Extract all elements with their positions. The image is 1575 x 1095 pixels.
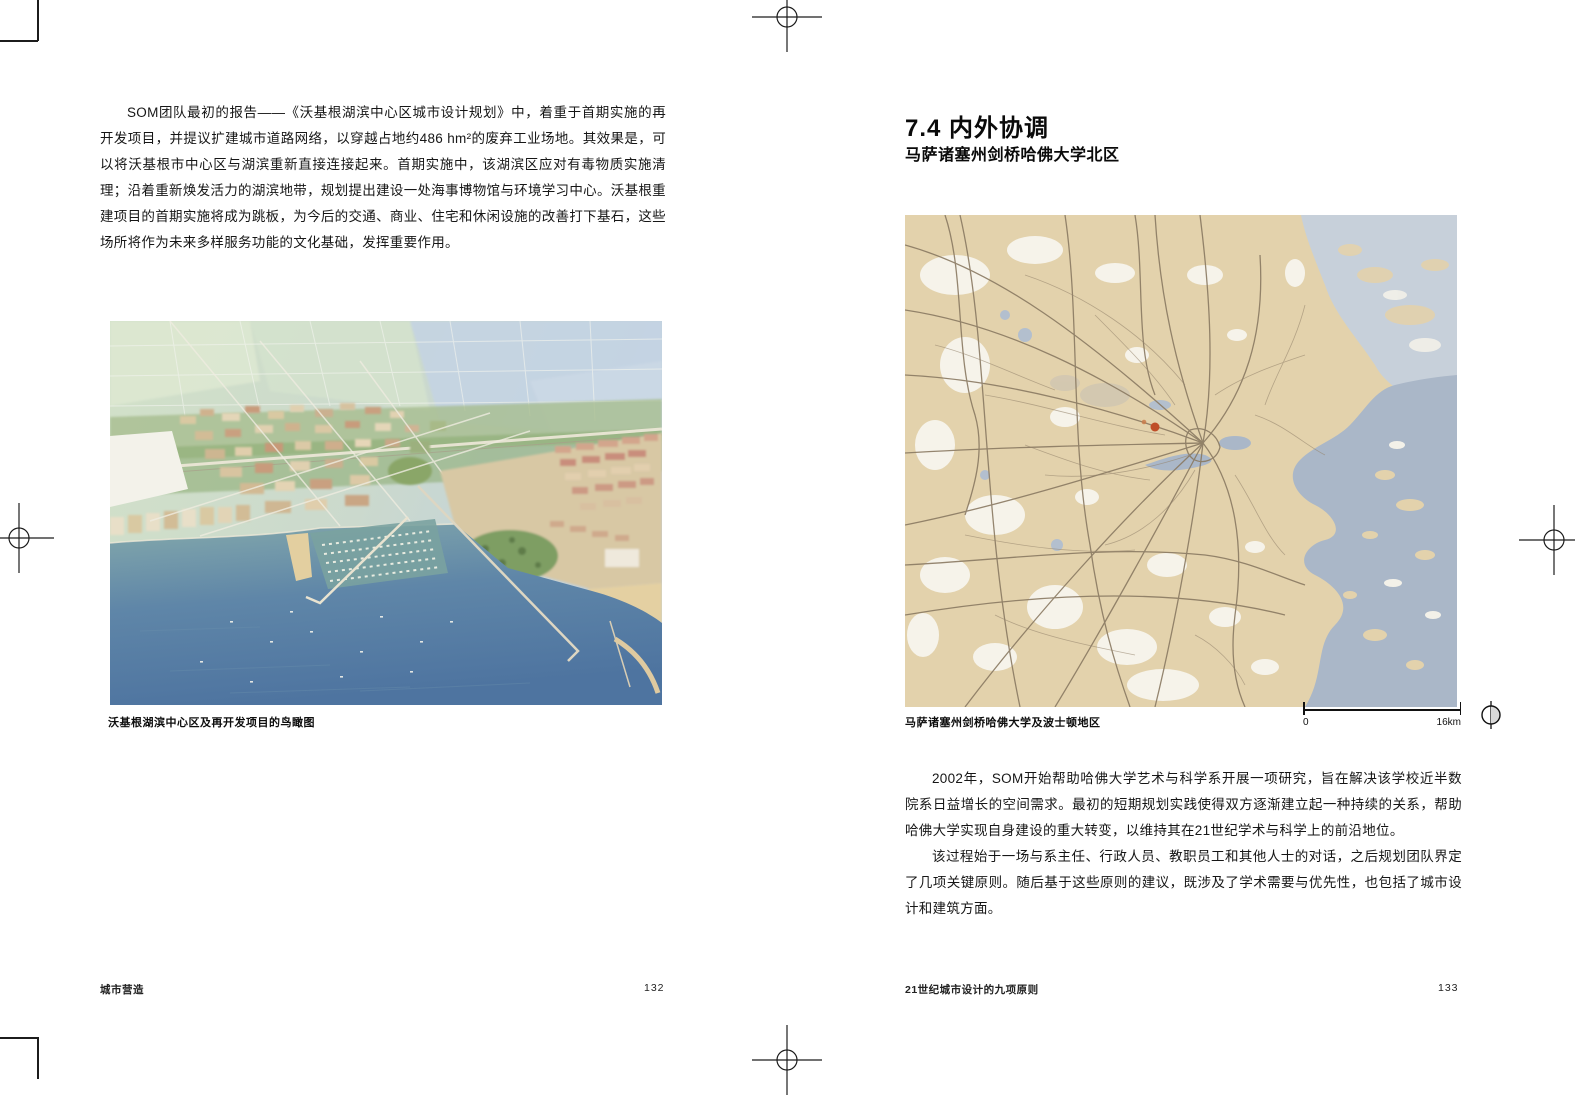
scale-bar-start-label: 0: [1303, 717, 1309, 728]
right-paragraph-1: 2002年，SOM开始帮助哈佛大学艺术与科学系开展一项研究，旨在解决该学校近半数…: [905, 766, 1462, 844]
book-spread: SOM团队最初的报告——《沃基根湖滨中心区城市设计规划》中，着重于首期实施的再开…: [0, 0, 1575, 1079]
section-subheading: 马萨诸塞州剑桥哈佛大学北区: [905, 141, 1120, 165]
right-footer-title: 21世纪城市设计的九项原则: [905, 982, 1039, 997]
right-body-text: 2002年，SOM开始帮助哈佛大学艺术与科学系开展一项研究，旨在解决该学校近半数…: [905, 766, 1462, 922]
registration-mark-left: [0, 503, 54, 573]
left-page-number: 132: [644, 982, 665, 994]
scale-bar-tick-right: [1460, 702, 1462, 715]
boston-region-map: [905, 215, 1457, 707]
map-scale-bar: 0 16km: [1303, 700, 1461, 730]
registration-mark-bottom: [752, 1025, 822, 1095]
left-body-text: SOM团队最初的报告——《沃基根湖滨中心区城市设计规划》中，着重于首期实施的再开…: [100, 100, 666, 256]
registration-mark-right: [1519, 505, 1575, 575]
left-figure-caption: 沃基根湖滨中心区及再开发项目的鸟瞰图: [108, 714, 315, 730]
registration-mark-top: [752, 0, 822, 52]
north-arrow-icon: [1480, 701, 1502, 729]
map-caption: 马萨诸塞州剑桥哈佛大学及波士顿地区: [905, 714, 1101, 730]
scale-bar-line: [1303, 709, 1461, 711]
section-heading: 7.4 内外协调: [905, 108, 1049, 143]
waukegan-aerial-rendering: [110, 321, 662, 705]
right-page-number: 133: [1438, 982, 1459, 994]
scale-bar-tick-left: [1303, 702, 1305, 715]
scale-bar-end-label: 16km: [1437, 717, 1461, 728]
right-paragraph-2: 该过程始于一场与系主任、行政人员、教职员工和其他人士的对话，之后规划团队界定了几…: [905, 844, 1462, 922]
left-footer-title: 城市营造: [100, 982, 144, 997]
